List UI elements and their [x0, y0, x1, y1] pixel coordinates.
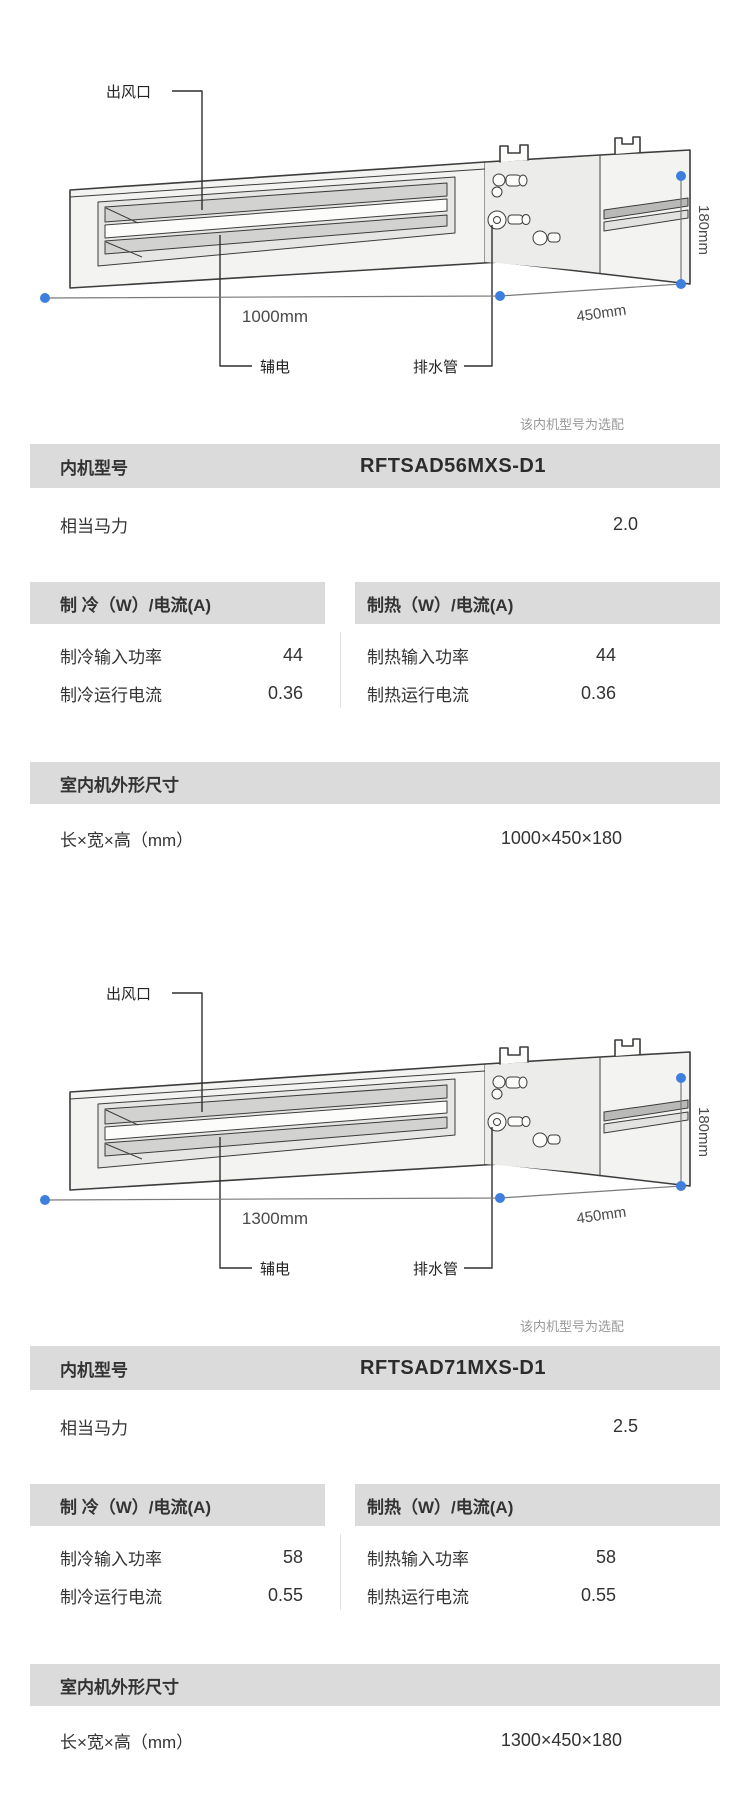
spec-value: 44 [283, 645, 303, 666]
spec-row: 制冷输入功率 58 [30, 1538, 325, 1576]
length-dimension: 1000mm [242, 307, 308, 326]
spec-value: 44 [596, 645, 616, 666]
column-divider [340, 1534, 341, 1610]
spec-value: 58 [596, 1547, 616, 1568]
spec-value: 58 [283, 1547, 303, 1568]
spec-value: 0.55 [581, 1585, 616, 1606]
spec-value: 0.36 [581, 683, 616, 704]
unit-diagram-1: 出风口 辅电 排水管 1000mm 450mm 180mm [30, 70, 720, 380]
spec-label: 制热输入功率 [367, 643, 469, 668]
hanging-bracket-icon [615, 137, 640, 154]
dimensions-header-label: 室内机外形尺寸 [60, 771, 179, 796]
spec-row: 制热输入功率 58 [355, 1538, 720, 1576]
hanging-bracket-icon [500, 145, 528, 162]
spec-label: 制热运行电流 [367, 1583, 469, 1608]
depth-dimension: 450mm [575, 302, 627, 326]
cooling-heating-header: 制 冷（W）/电流(A) 制热（W）/电流(A) [30, 582, 720, 624]
spec-row: 制热运行电流 0.36 [355, 674, 720, 712]
cooling-heating-header: 制 冷（W）/电流(A) 制热（W）/电流(A) [30, 1484, 720, 1526]
model-label: 内机型号 [60, 1356, 128, 1381]
dimensions-header-label: 室内机外形尺寸 [60, 1673, 179, 1698]
aux-electric-label: 辅电 [260, 359, 290, 376]
air-outlet-label: 出风口 [106, 84, 151, 101]
dimension-dot [676, 1073, 686, 1083]
air-outlet-label: 出风口 [106, 986, 151, 1003]
drain-pipe-label: 排水管 [413, 1261, 458, 1278]
horsepower-value: 2.5 [613, 1416, 638, 1437]
spec-sheet: 出风口 辅电 排水管 1000mm 450mm 180mm 该内机型号为选配 内… [0, 70, 750, 1803]
horsepower-label: 相当马力 [60, 1414, 128, 1439]
spec-row: 制热运行电流 0.55 [355, 1576, 720, 1614]
cooling-heating-specs: 制冷输入功率 58 制冷运行电流 0.55 制热输入功率 58 制热运行电流 0… [30, 1526, 720, 1614]
horsepower-row: 相当马力 2.0 [30, 488, 720, 560]
height-dimension: 180mm [695, 1107, 712, 1157]
dimension-dot [495, 291, 505, 301]
length-dimension: 1300mm [242, 1209, 308, 1228]
optional-note: 该内机型号为选配 [30, 416, 720, 434]
spec-label: 制热运行电流 [367, 681, 469, 706]
hanging-bracket-icon [500, 1047, 528, 1064]
spec-label: 制冷输入功率 [60, 1545, 162, 1570]
dimension-dot [40, 1195, 50, 1205]
dimension-dot [495, 1193, 505, 1203]
dimensions-value: 1300×450×180 [501, 1730, 622, 1751]
spec-label: 制冷输入功率 [60, 643, 162, 668]
depth-dimension: 450mm [575, 1204, 627, 1228]
column-divider [340, 632, 341, 708]
hanging-bracket-icon [615, 1039, 640, 1056]
model-value: RFTSAD71MXS-D1 [360, 1357, 546, 1380]
dimension-dot [676, 279, 686, 289]
horsepower-row: 相当马力 2.5 [30, 1390, 720, 1462]
dimension-dot [676, 171, 686, 181]
dimensions-header: 室内机外形尺寸 [30, 762, 720, 804]
dimension-dot [40, 293, 50, 303]
product-block-2: 出风口 辅电 排水管 1300mm 450mm 180mm 该内机型号为选配 内… [30, 972, 720, 1774]
model-value: RFTSAD56MXS-D1 [360, 455, 546, 478]
model-label: 内机型号 [60, 454, 128, 479]
heating-header: 制热（W）/电流(A) [355, 1484, 720, 1526]
spec-row: 制冷运行电流 0.55 [30, 1576, 325, 1614]
dimensions-label: 长×宽×高（mm） [60, 826, 193, 851]
horsepower-label: 相当马力 [60, 512, 128, 537]
cooling-header: 制 冷（W）/电流(A) [30, 1484, 325, 1526]
aux-electric-label: 辅电 [260, 1261, 290, 1278]
drain-pipe-label: 排水管 [413, 359, 458, 376]
model-row: 内机型号 RFTSAD71MXS-D1 [30, 1346, 720, 1390]
spec-label: 制冷运行电流 [60, 681, 162, 706]
spec-label: 制冷运行电流 [60, 1583, 162, 1608]
dimensions-row: 长×宽×高（mm） 1300×450×180 [30, 1706, 720, 1774]
spec-value: 0.55 [268, 1585, 303, 1606]
model-row: 内机型号 RFTSAD56MXS-D1 [30, 444, 720, 488]
dimensions-header: 室内机外形尺寸 [30, 1664, 720, 1706]
product-block-1: 出风口 辅电 排水管 1000mm 450mm 180mm 该内机型号为选配 内… [30, 70, 720, 872]
dimensions-label: 长×宽×高（mm） [60, 1728, 193, 1753]
spec-row: 制冷输入功率 44 [30, 636, 325, 674]
heating-header: 制热（W）/电流(A) [355, 582, 720, 624]
dimension-dot [676, 1181, 686, 1191]
horsepower-value: 2.0 [613, 514, 638, 535]
cooling-heating-specs: 制冷输入功率 44 制冷运行电流 0.36 制热输入功率 44 制热运行电流 0… [30, 624, 720, 712]
optional-note: 该内机型号为选配 [30, 1318, 720, 1336]
spec-label: 制热输入功率 [367, 1545, 469, 1570]
spec-row: 制冷运行电流 0.36 [30, 674, 325, 712]
spec-row: 制热输入功率 44 [355, 636, 720, 674]
unit-diagram-2: 出风口 辅电 排水管 1300mm 450mm 180mm [30, 972, 720, 1282]
cooling-header: 制 冷（W）/电流(A) [30, 582, 325, 624]
dimensions-row: 长×宽×高（mm） 1000×450×180 [30, 804, 720, 872]
spec-value: 0.36 [268, 683, 303, 704]
dimensions-value: 1000×450×180 [501, 828, 622, 849]
height-dimension: 180mm [695, 205, 712, 255]
